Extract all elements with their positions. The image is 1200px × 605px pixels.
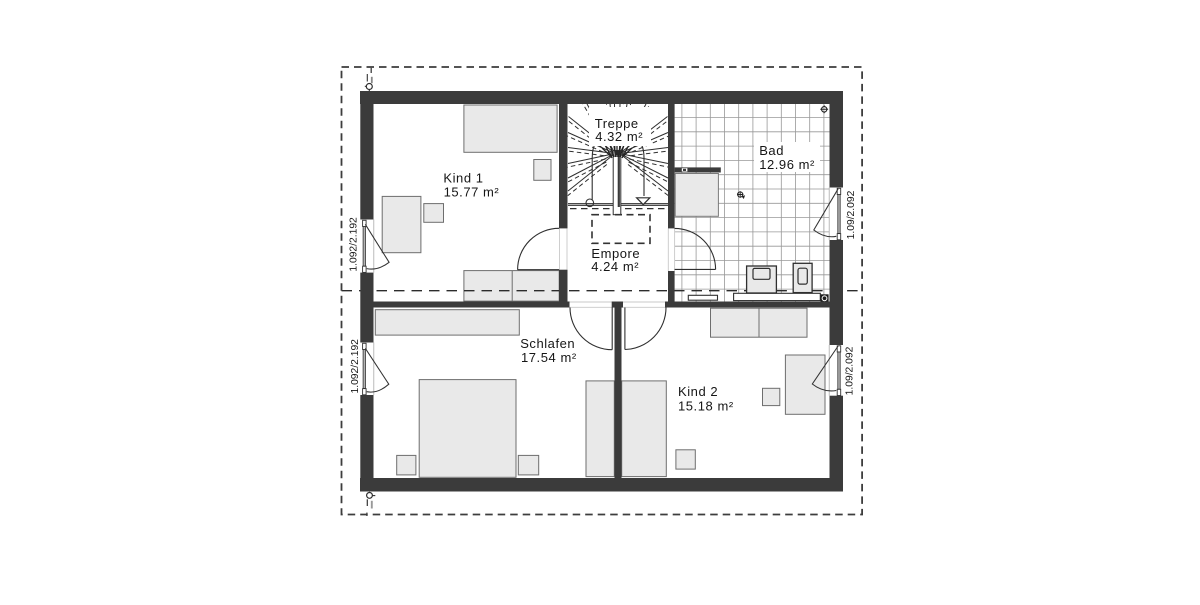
svg-text:15.18 m²: 15.18 m² [678, 399, 734, 414]
svg-text:Kind 2: Kind 2 [678, 384, 718, 399]
svg-text:4.24 m²: 4.24 m² [591, 259, 639, 274]
svg-text:1.092/2.192: 1.092/2.192 [350, 339, 361, 394]
svg-text:4.32 m²: 4.32 m² [595, 129, 643, 144]
svg-text:Schlafen: Schlafen [520, 336, 575, 351]
svg-text:1.092/2.192: 1.092/2.192 [348, 217, 359, 272]
svg-text:15.77 m²: 15.77 m² [444, 185, 500, 200]
svg-text:1.09/2.092: 1.09/2.092 [846, 190, 857, 239]
svg-text:Bad: Bad [759, 143, 784, 158]
svg-text:12.96 m²: 12.96 m² [759, 157, 815, 172]
svg-text:17.54 m²: 17.54 m² [521, 350, 577, 365]
svg-text:1.09/2.092: 1.09/2.092 [845, 346, 856, 395]
svg-text:Kind 1: Kind 1 [443, 171, 483, 186]
